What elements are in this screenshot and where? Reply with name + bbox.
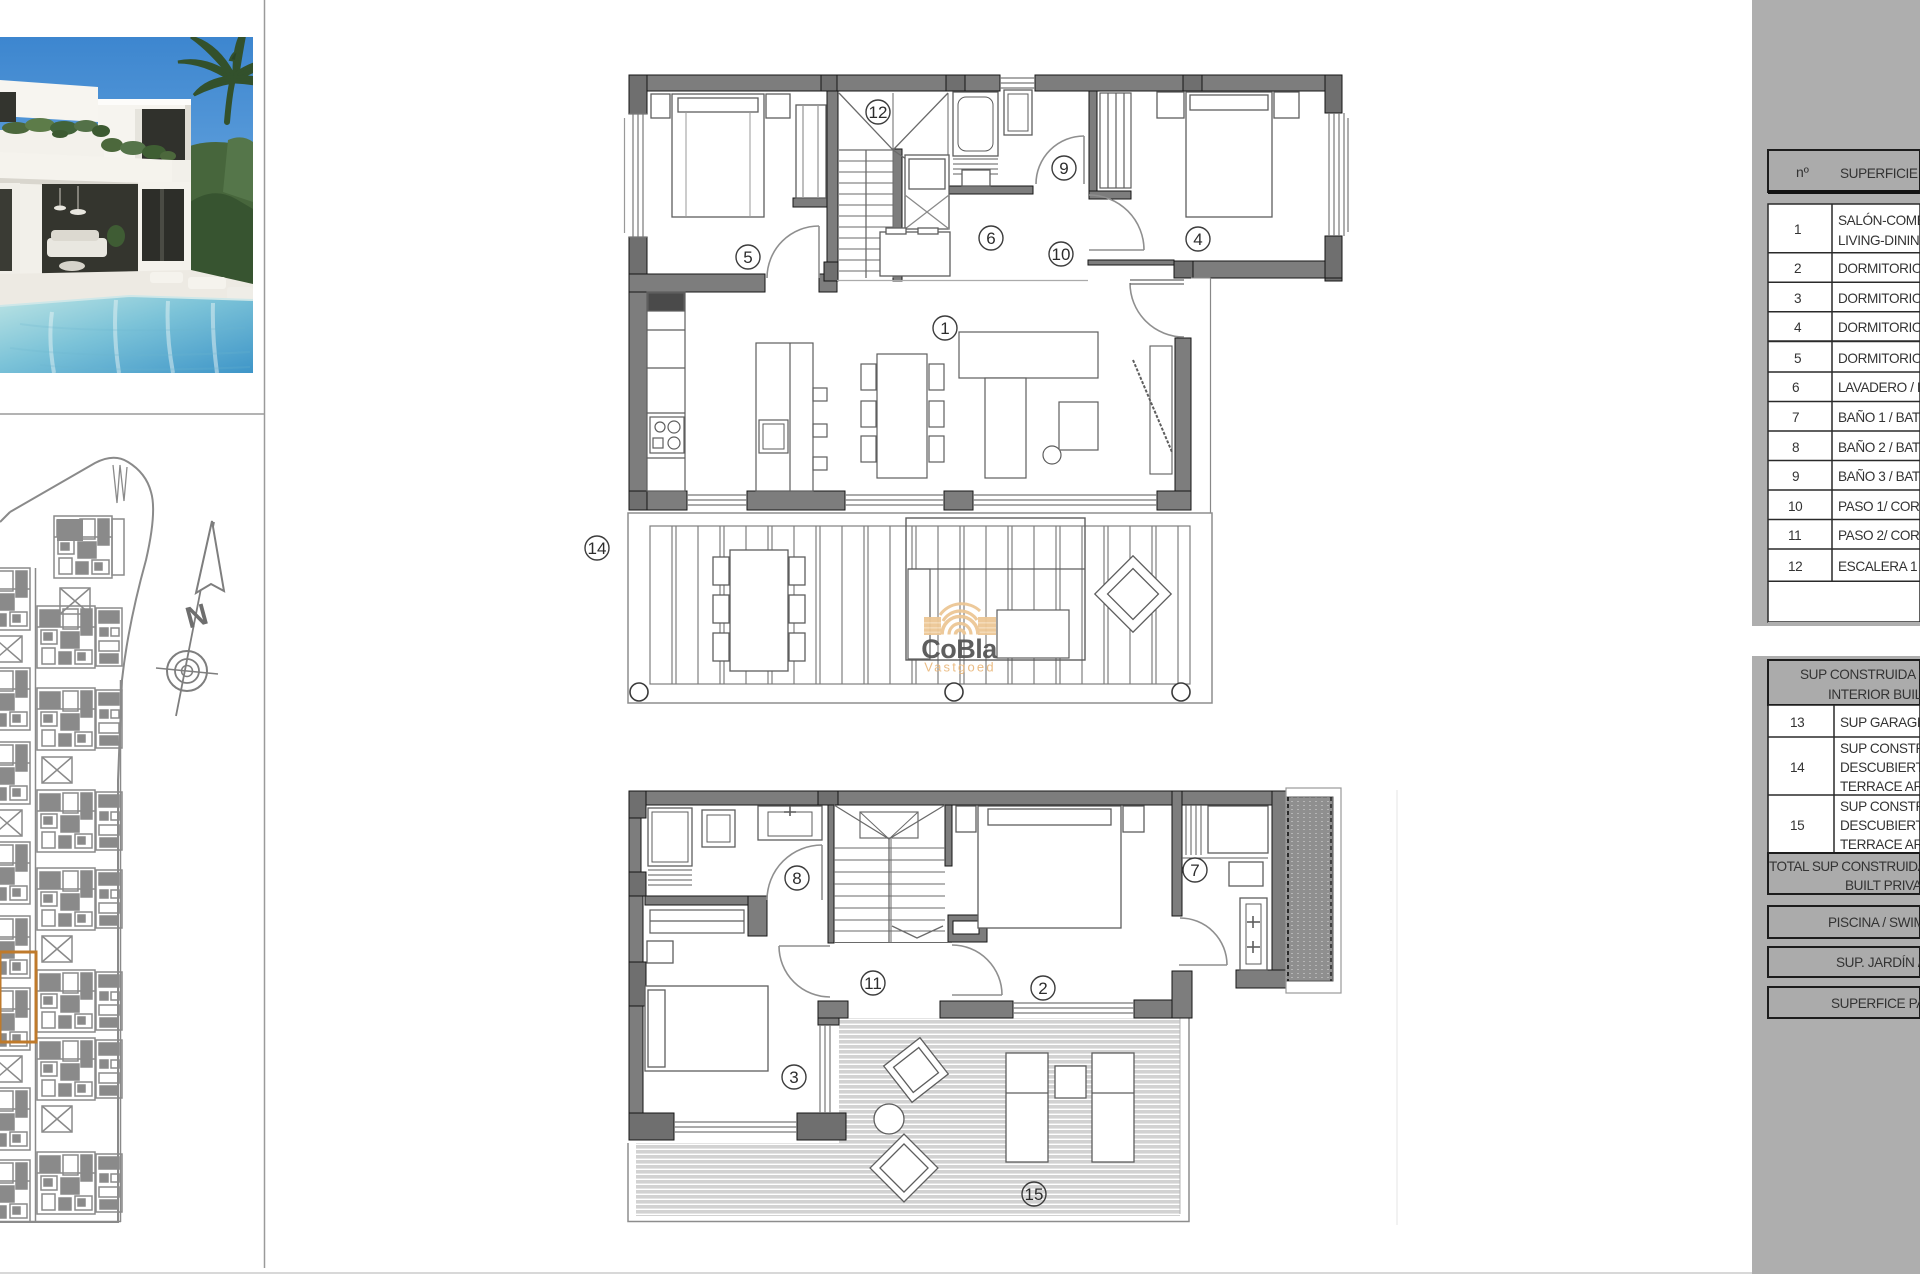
svg-text:3: 3: [1794, 291, 1801, 306]
svg-text:15: 15: [1025, 1185, 1044, 1204]
svg-text:5: 5: [743, 248, 752, 267]
svg-text:BAÑO 3 / BATHROOM: BAÑO 3 / BATHROOM: [1838, 469, 1920, 484]
svg-text:ESCALERA 1 / STAIRC: ESCALERA 1 / STAIRC: [1838, 559, 1920, 574]
svg-text:10: 10: [1788, 499, 1803, 514]
svg-text:SUPERFICIE ÚTIL / USEF: SUPERFICIE ÚTIL / USEF: [1840, 166, 1920, 181]
svg-text:12: 12: [1788, 559, 1802, 574]
svg-text:7: 7: [1792, 410, 1799, 425]
svg-text:4: 4: [1193, 230, 1202, 249]
svg-text:SALÓN-COMEDOR / C: SALÓN-COMEDOR / C: [1838, 213, 1920, 228]
svg-text:LIVING-DININGROOM: LIVING-DININGROOM: [1838, 233, 1920, 248]
svg-text:14: 14: [1790, 760, 1805, 775]
svg-text:TOTAL SUP CONSTRUIDA: TOTAL SUP CONSTRUIDA: [1769, 859, 1920, 874]
svg-text:TERRACE AREA 2: TERRACE AREA 2: [1840, 837, 1920, 852]
svg-text:SUP CONSTRUIDA: SUP CONSTRUIDA: [1840, 741, 1920, 756]
svg-text:3: 3: [789, 1068, 798, 1087]
svg-text:PASO 1/ CORRIDOR 1: PASO 1/ CORRIDOR 1: [1838, 499, 1920, 514]
svg-text:2: 2: [1794, 261, 1801, 276]
svg-text:1: 1: [1794, 222, 1801, 237]
svg-text:13: 13: [1790, 715, 1804, 730]
svg-text:12: 12: [869, 103, 888, 122]
svg-text:15: 15: [1790, 818, 1804, 833]
svg-text:DESCUBIERTA 1 / N: DESCUBIERTA 1 / N: [1840, 760, 1920, 775]
svg-text:DORMITORIO 3 / BED: DORMITORIO 3 / BED: [1838, 320, 1920, 335]
svg-text:8: 8: [792, 869, 801, 888]
svg-text:4: 4: [1794, 320, 1802, 335]
svg-text:8: 8: [1792, 440, 1799, 455]
svg-text:DORMITORIO 4 / BED: DORMITORIO 4 / BED: [1838, 351, 1920, 366]
svg-text:TERRACE AREA 1: TERRACE AREA 1: [1840, 779, 1920, 794]
svg-text:BUILT PRIVATE: BUILT PRIVATE: [1845, 878, 1920, 893]
svg-text:INTERIOR BUILT: INTERIOR BUILT: [1828, 687, 1920, 702]
svg-text:SUP CONSTRUIDA: SUP CONSTRUIDA: [1840, 799, 1920, 814]
svg-text:BAÑO 2 / BATHROOM: BAÑO 2 / BATHROOM: [1838, 440, 1920, 455]
svg-text:SUPERFICE PARCELA: SUPERFICE PARCELA: [1831, 996, 1920, 1011]
svg-text:6: 6: [986, 229, 995, 248]
svg-text:SUP. JARDÍN / GARD: SUP. JARDÍN / GARD: [1836, 955, 1920, 970]
svg-text:PASO 2/ CORRIDOR 2: PASO 2/ CORRIDOR 2: [1838, 528, 1920, 543]
svg-text:11: 11: [1788, 528, 1801, 543]
svg-text:SUP CONSTRUIDA INTER: SUP CONSTRUIDA INTER: [1800, 667, 1920, 682]
svg-text:SUP GARAGE/ GARA: SUP GARAGE/ GARA: [1840, 715, 1920, 730]
svg-text:2: 2: [1038, 979, 1047, 998]
svg-text:Vastgoed: Vastgoed: [924, 660, 996, 675]
svg-text:DORMITORIO 2 / BED: DORMITORIO 2 / BED: [1838, 291, 1920, 306]
svg-text:1: 1: [940, 319, 949, 338]
svg-text:DORMITORIO 1 / BED: DORMITORIO 1 / BED: [1838, 261, 1920, 276]
svg-text:BAÑO 1 / BATHROOM: BAÑO 1 / BATHROOM: [1838, 410, 1920, 425]
svg-text:DESCUBIERTA 2 / N: DESCUBIERTA 2 / N: [1840, 818, 1920, 833]
svg-text:7: 7: [1190, 861, 1199, 880]
svg-text:9: 9: [1059, 159, 1068, 178]
svg-text:LAVADERO / LAUNDR: LAVADERO / LAUNDR: [1838, 380, 1920, 395]
svg-text:14: 14: [588, 539, 607, 558]
svg-text:nº: nº: [1796, 164, 1809, 180]
svg-text:5: 5: [1794, 351, 1801, 366]
svg-text:11: 11: [864, 974, 882, 993]
svg-text:9: 9: [1792, 469, 1799, 484]
svg-text:PISCINA / SWIMMIN: PISCINA / SWIMMIN: [1828, 915, 1920, 930]
svg-text:6: 6: [1792, 380, 1799, 395]
svg-text:10: 10: [1052, 245, 1071, 264]
